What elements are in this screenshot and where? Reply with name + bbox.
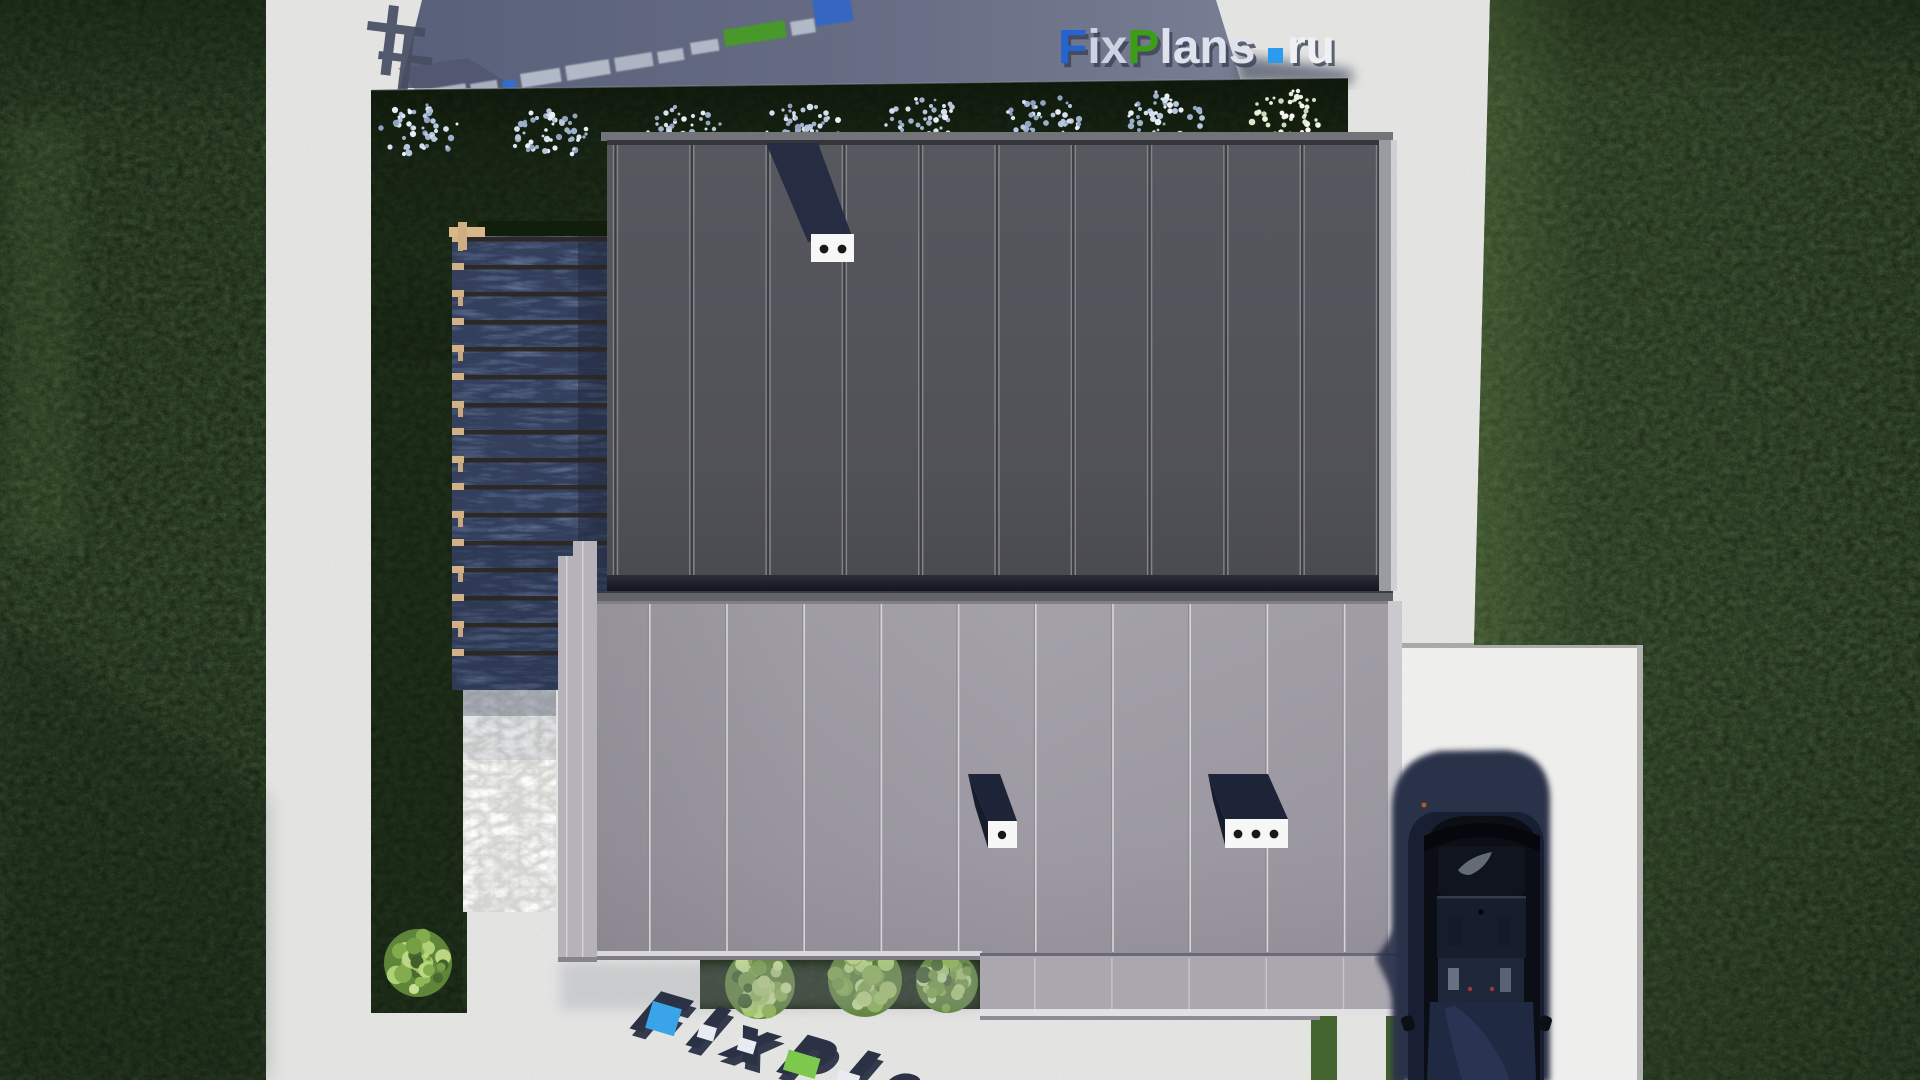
svg-text:ru: ru [1287, 21, 1335, 74]
svg-text:FixPlans: FixPlans [1058, 21, 1255, 74]
